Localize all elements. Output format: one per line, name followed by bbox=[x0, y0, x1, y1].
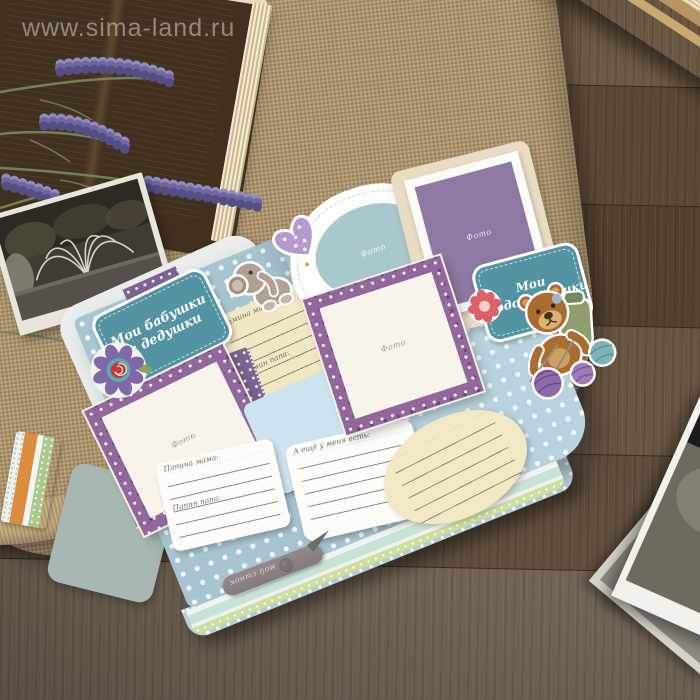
photo-placeholder: Фото bbox=[319, 272, 467, 419]
scene: www.sima-land.ru Мои бабушки и дедушки bbox=[0, 0, 700, 700]
photo-texture bbox=[664, 454, 700, 555]
bw-photo-stack bbox=[615, 408, 700, 688]
photo-label: Фото bbox=[465, 227, 492, 242]
watermark: www.sima-land.ru bbox=[22, 14, 235, 43]
photo-label: Фото bbox=[359, 241, 386, 258]
photo-label: Фото bbox=[170, 430, 197, 449]
strap-button bbox=[278, 556, 295, 573]
bw-photo-image bbox=[626, 395, 700, 640]
photo-label: Фото bbox=[380, 337, 407, 354]
